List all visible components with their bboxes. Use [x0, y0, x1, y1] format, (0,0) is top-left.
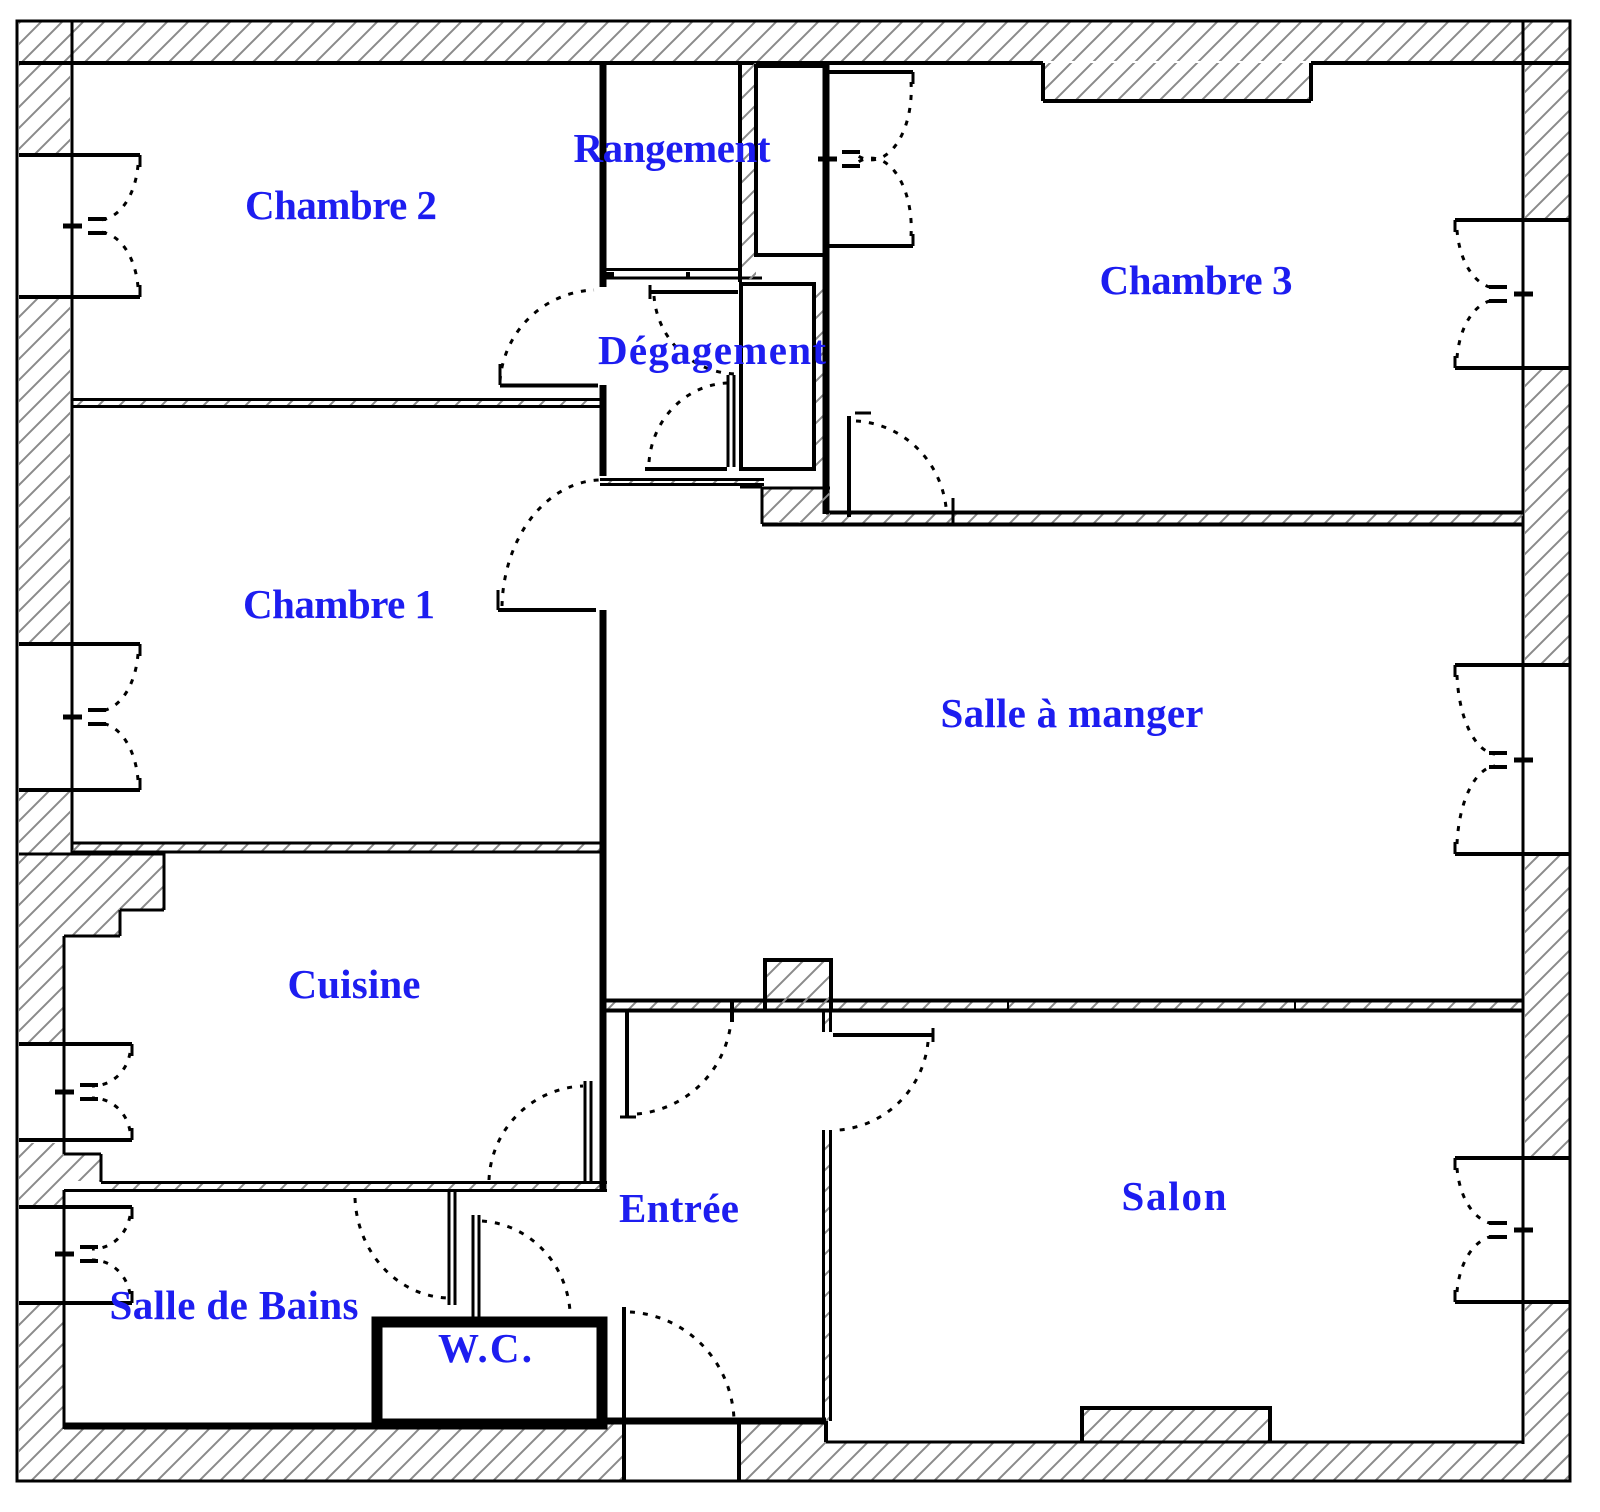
svg-text:Salle de Bains: Salle de Bains	[110, 1282, 359, 1328]
svg-text:Salon: Salon	[1122, 1173, 1227, 1219]
svg-text:Cuisine: Cuisine	[288, 961, 421, 1007]
svg-text:Chambre 3: Chambre 3	[1100, 257, 1293, 303]
svg-text:Chambre 2: Chambre 2	[245, 182, 437, 228]
svg-text:Dégagement: Dégagement	[598, 327, 826, 373]
svg-text:W.C.: W.C.	[438, 1325, 532, 1371]
svg-text:Salle à manger: Salle à manger	[941, 690, 1204, 736]
svg-text:Entrée: Entrée	[619, 1185, 739, 1231]
svg-text:Chambre 1: Chambre 1	[243, 581, 435, 627]
svg-text:Rangement: Rangement	[574, 125, 771, 171]
